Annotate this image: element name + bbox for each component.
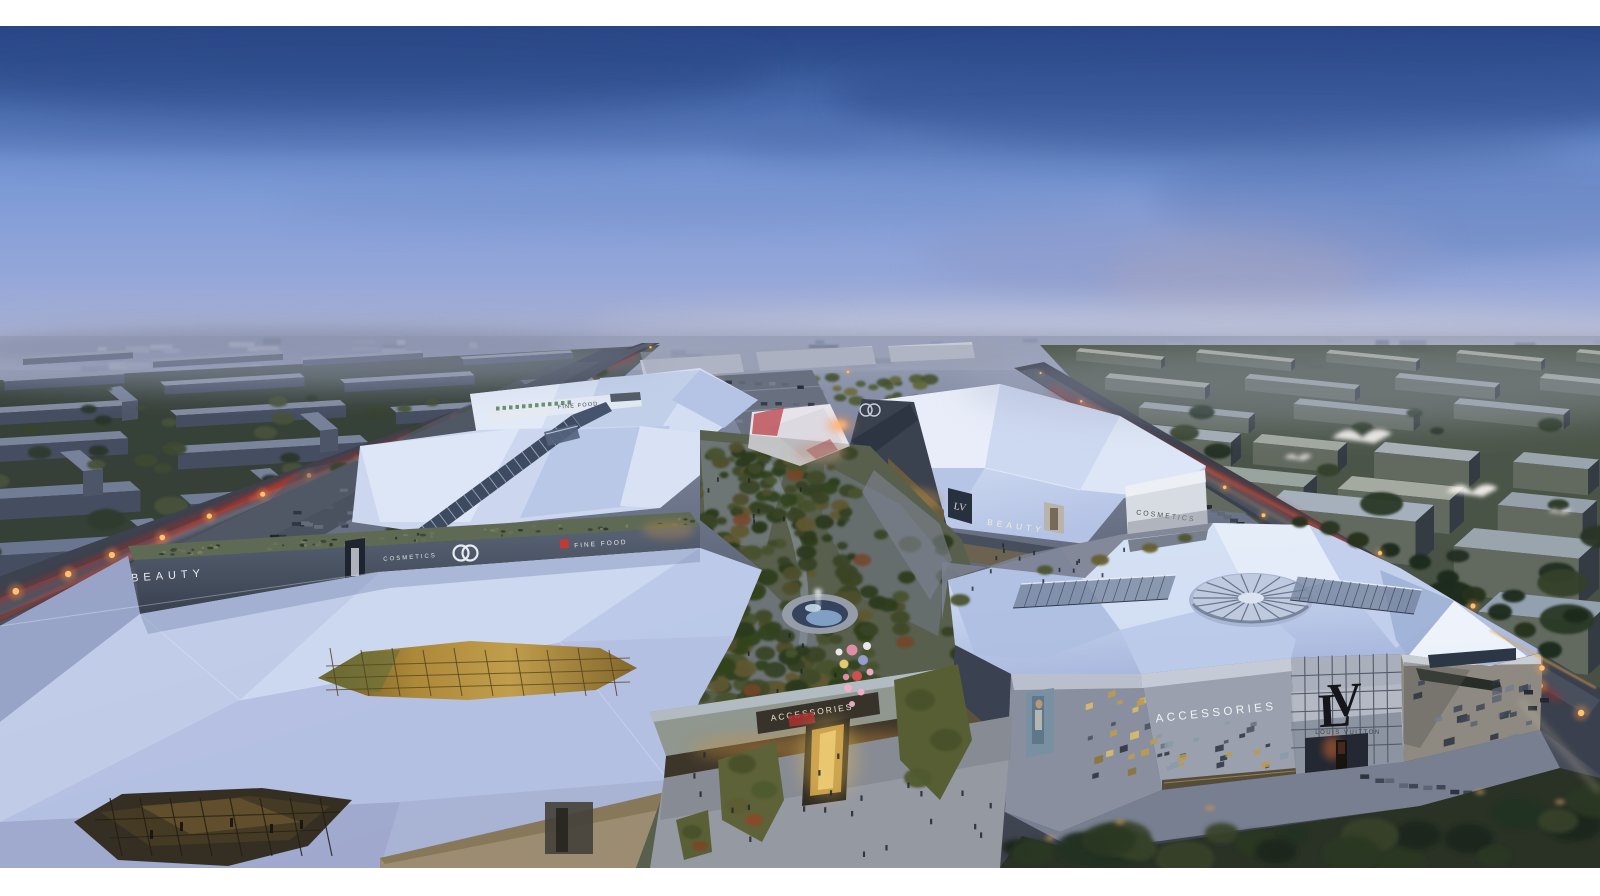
svg-text:V: V [1326, 673, 1364, 728]
